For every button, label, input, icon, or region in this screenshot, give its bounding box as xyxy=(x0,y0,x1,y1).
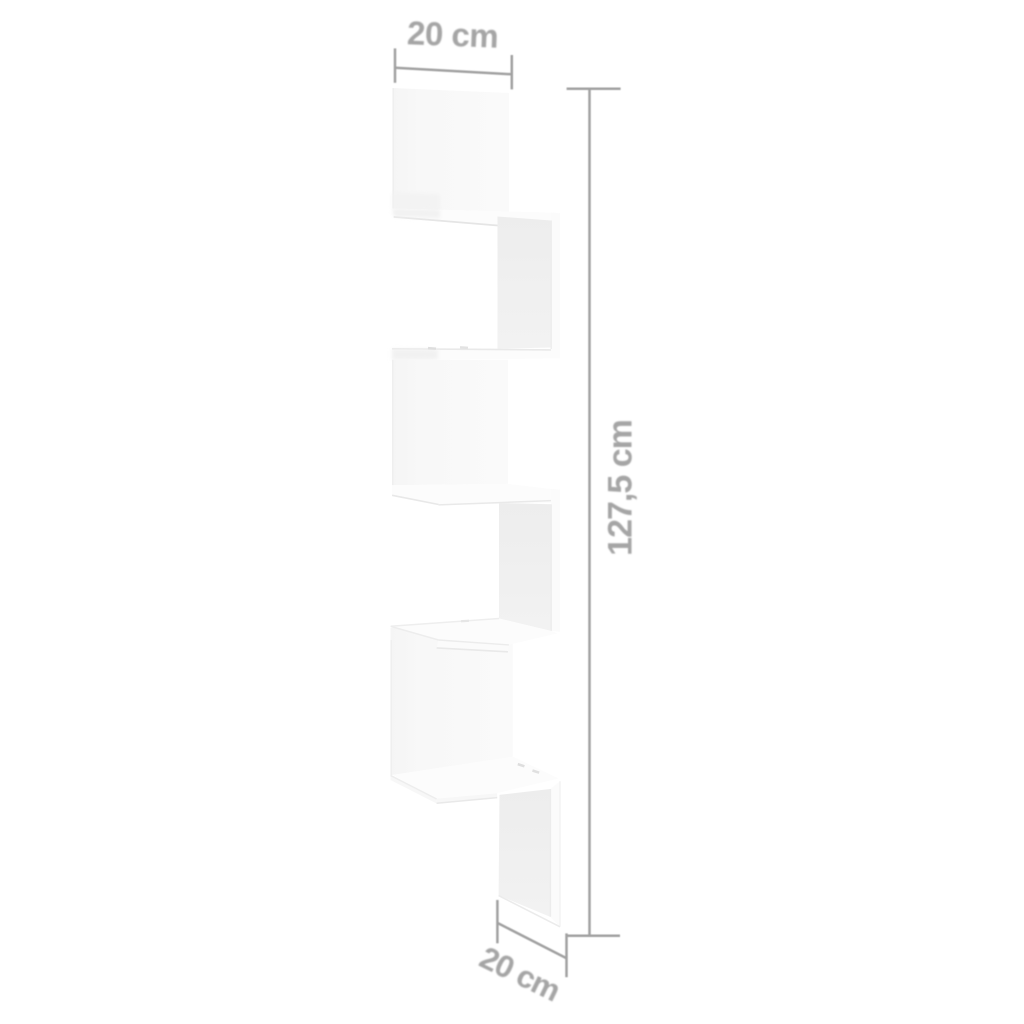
svg-text:20 cm: 20 cm xyxy=(406,14,498,54)
svg-text:127,5 cm: 127,5 cm xyxy=(602,420,640,556)
